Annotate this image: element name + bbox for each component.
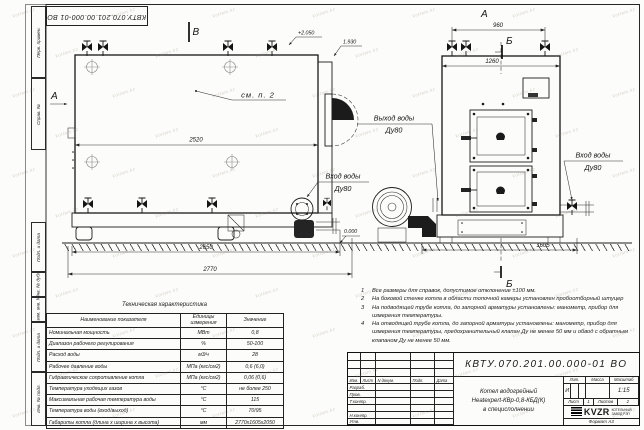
note-item: 2На боковой стенке котла в области топоч…	[356, 295, 638, 303]
lock-icon	[496, 187, 505, 194]
side-view	[68, 41, 358, 240]
spec-table-title: Техническая характеристика	[46, 302, 283, 313]
outlet-dn: Ду80	[385, 126, 403, 135]
top-doc-number-text: КВТУ.070.201.00.000-01 ВО	[47, 13, 146, 20]
change-record-grid	[348, 353, 454, 377]
company-logo: KVZR КОТЕЛЬНЫЙ ЗАВОД РЭП	[564, 406, 639, 419]
pump	[294, 220, 314, 238]
format-note: Формат А3	[564, 419, 639, 426]
dim-side-total: 2770	[202, 267, 217, 273]
table-row: Диапазон рабочего регулирования%50-100	[47, 339, 284, 350]
top-inverted-doc-number: КВТУ.070.201.00.000-01 ВО	[46, 6, 148, 26]
margin-cell-podp-data-2: Подп. и дата	[31, 322, 46, 372]
title-block-right: Лит. Масса Масштаб И 1:15 Лист 1 Листов …	[564, 377, 639, 425]
dim-front-top: 960	[493, 23, 504, 29]
table-row: Габариты котла (длина х ширина х высота)…	[47, 417, 284, 428]
note-item: 1Все размеры для справок, допустимое отк…	[356, 287, 638, 295]
dimensions: 2520 2650 2770 960 1260 1605	[68, 23, 577, 278]
spec-header-row: Наименование показателя Единицы измерени…	[47, 314, 284, 328]
fan-elbow	[408, 216, 436, 237]
pipe-labels: Выход воды Ду80 Вход воды Ду80 Вход воды…	[195, 90, 623, 201]
margin-cell-perv-primen: Перв. примен.	[31, 6, 46, 78]
elevation-ground: 0.000	[344, 229, 357, 235]
spec-table: Наименование показателя Единицы измерени…	[46, 313, 284, 429]
margin-cell-vzam-inv: Взам. инв. №	[31, 297, 46, 322]
front-view	[373, 41, 595, 262]
side-door	[332, 98, 354, 120]
margin-cell-inv-podl: Инв. № подл.	[31, 372, 46, 426]
valve-icon	[137, 198, 147, 213]
dim-side-top: 2520	[188, 138, 203, 144]
valve-icon	[98, 41, 108, 56]
inlet-right-dn: Ду80	[584, 163, 602, 172]
product-title: Котел водогрейный Heatexpert-КВр-0,8-КБД…	[454, 377, 564, 425]
elevation-top: +2.050	[298, 31, 314, 37]
view-label-top: В	[193, 27, 200, 38]
section-label-top: Б	[506, 36, 513, 47]
margin-cell-sprav-no: Справ. №	[31, 78, 46, 150]
valve-icon	[461, 41, 471, 56]
inlet-left-dn: Ду80	[334, 184, 352, 193]
inlet-flange	[291, 198, 313, 220]
table-row: Гидравлическое сопротивление котлаМПа (к…	[47, 372, 284, 383]
doc-number: КВТУ.070.201.00.000-01 ВО	[454, 353, 639, 377]
valve-icon	[83, 198, 93, 213]
table-row: Температура уходящих газов°Сне более 250	[47, 383, 284, 394]
table-row: Номинальная мощностьМВт0,8	[47, 328, 284, 339]
drawing-sheet: 2520 2650 2770 960 1260 1605 +2.050 1.93…	[0, 0, 644, 430]
valve-icon	[223, 41, 233, 56]
inlet-right-label: Вход воды	[576, 151, 612, 160]
valve-icon	[267, 41, 277, 56]
spec-table-block: Техническая характеристика Наименование …	[46, 302, 283, 429]
view-label-side: А	[50, 91, 58, 102]
valve-icon	[323, 198, 331, 210]
valve-icon	[567, 200, 577, 215]
valve-icon	[207, 198, 217, 213]
table-row: Рабочее давление водыМПа (кгс/см2)0,6 (6…	[47, 361, 284, 372]
kvzr-logo-icon	[571, 407, 582, 416]
note-item: 3На подводящей трубе котла, до запорной …	[356, 304, 638, 321]
margin-cell-inv-dubl: Инв. № дубл.	[31, 272, 46, 297]
title-block: КВТУ.070.201.00.000-01 ВО Изм. Лист N до…	[347, 352, 640, 426]
inlet-left-label: Вход воды	[326, 172, 362, 181]
mass-value	[586, 384, 610, 399]
view-label-front: А	[480, 9, 488, 20]
see-note-label: см. п. 2	[241, 91, 275, 100]
note-item: 4На отводящей трубе котла, до запорной а…	[356, 320, 638, 345]
fan	[373, 188, 412, 243]
table-row: Максимальная рабочая температура воды°С1…	[47, 395, 284, 406]
notes-list: 1Все размеры для справок, допустимое отк…	[356, 287, 638, 345]
valve-icon	[82, 41, 92, 56]
outlet-label: Выход воды	[374, 114, 415, 123]
signature-grid: Изм. Лист N докум. Подп. Дата Разраб. Пр…	[348, 377, 454, 425]
scale-value: 1:15	[610, 384, 639, 399]
dim-front-width: 1260	[485, 59, 499, 65]
table-row: Температура воды (вход/выход)°С70/95	[47, 406, 284, 417]
margin-cell-podp-data-1: Подп. и дата	[31, 222, 46, 272]
lock-icon	[496, 133, 505, 141]
table-row: Расход водым3/ч28	[47, 350, 284, 361]
elevation-chimney: 1.930	[343, 40, 356, 46]
ground-hatch	[62, 244, 632, 251]
